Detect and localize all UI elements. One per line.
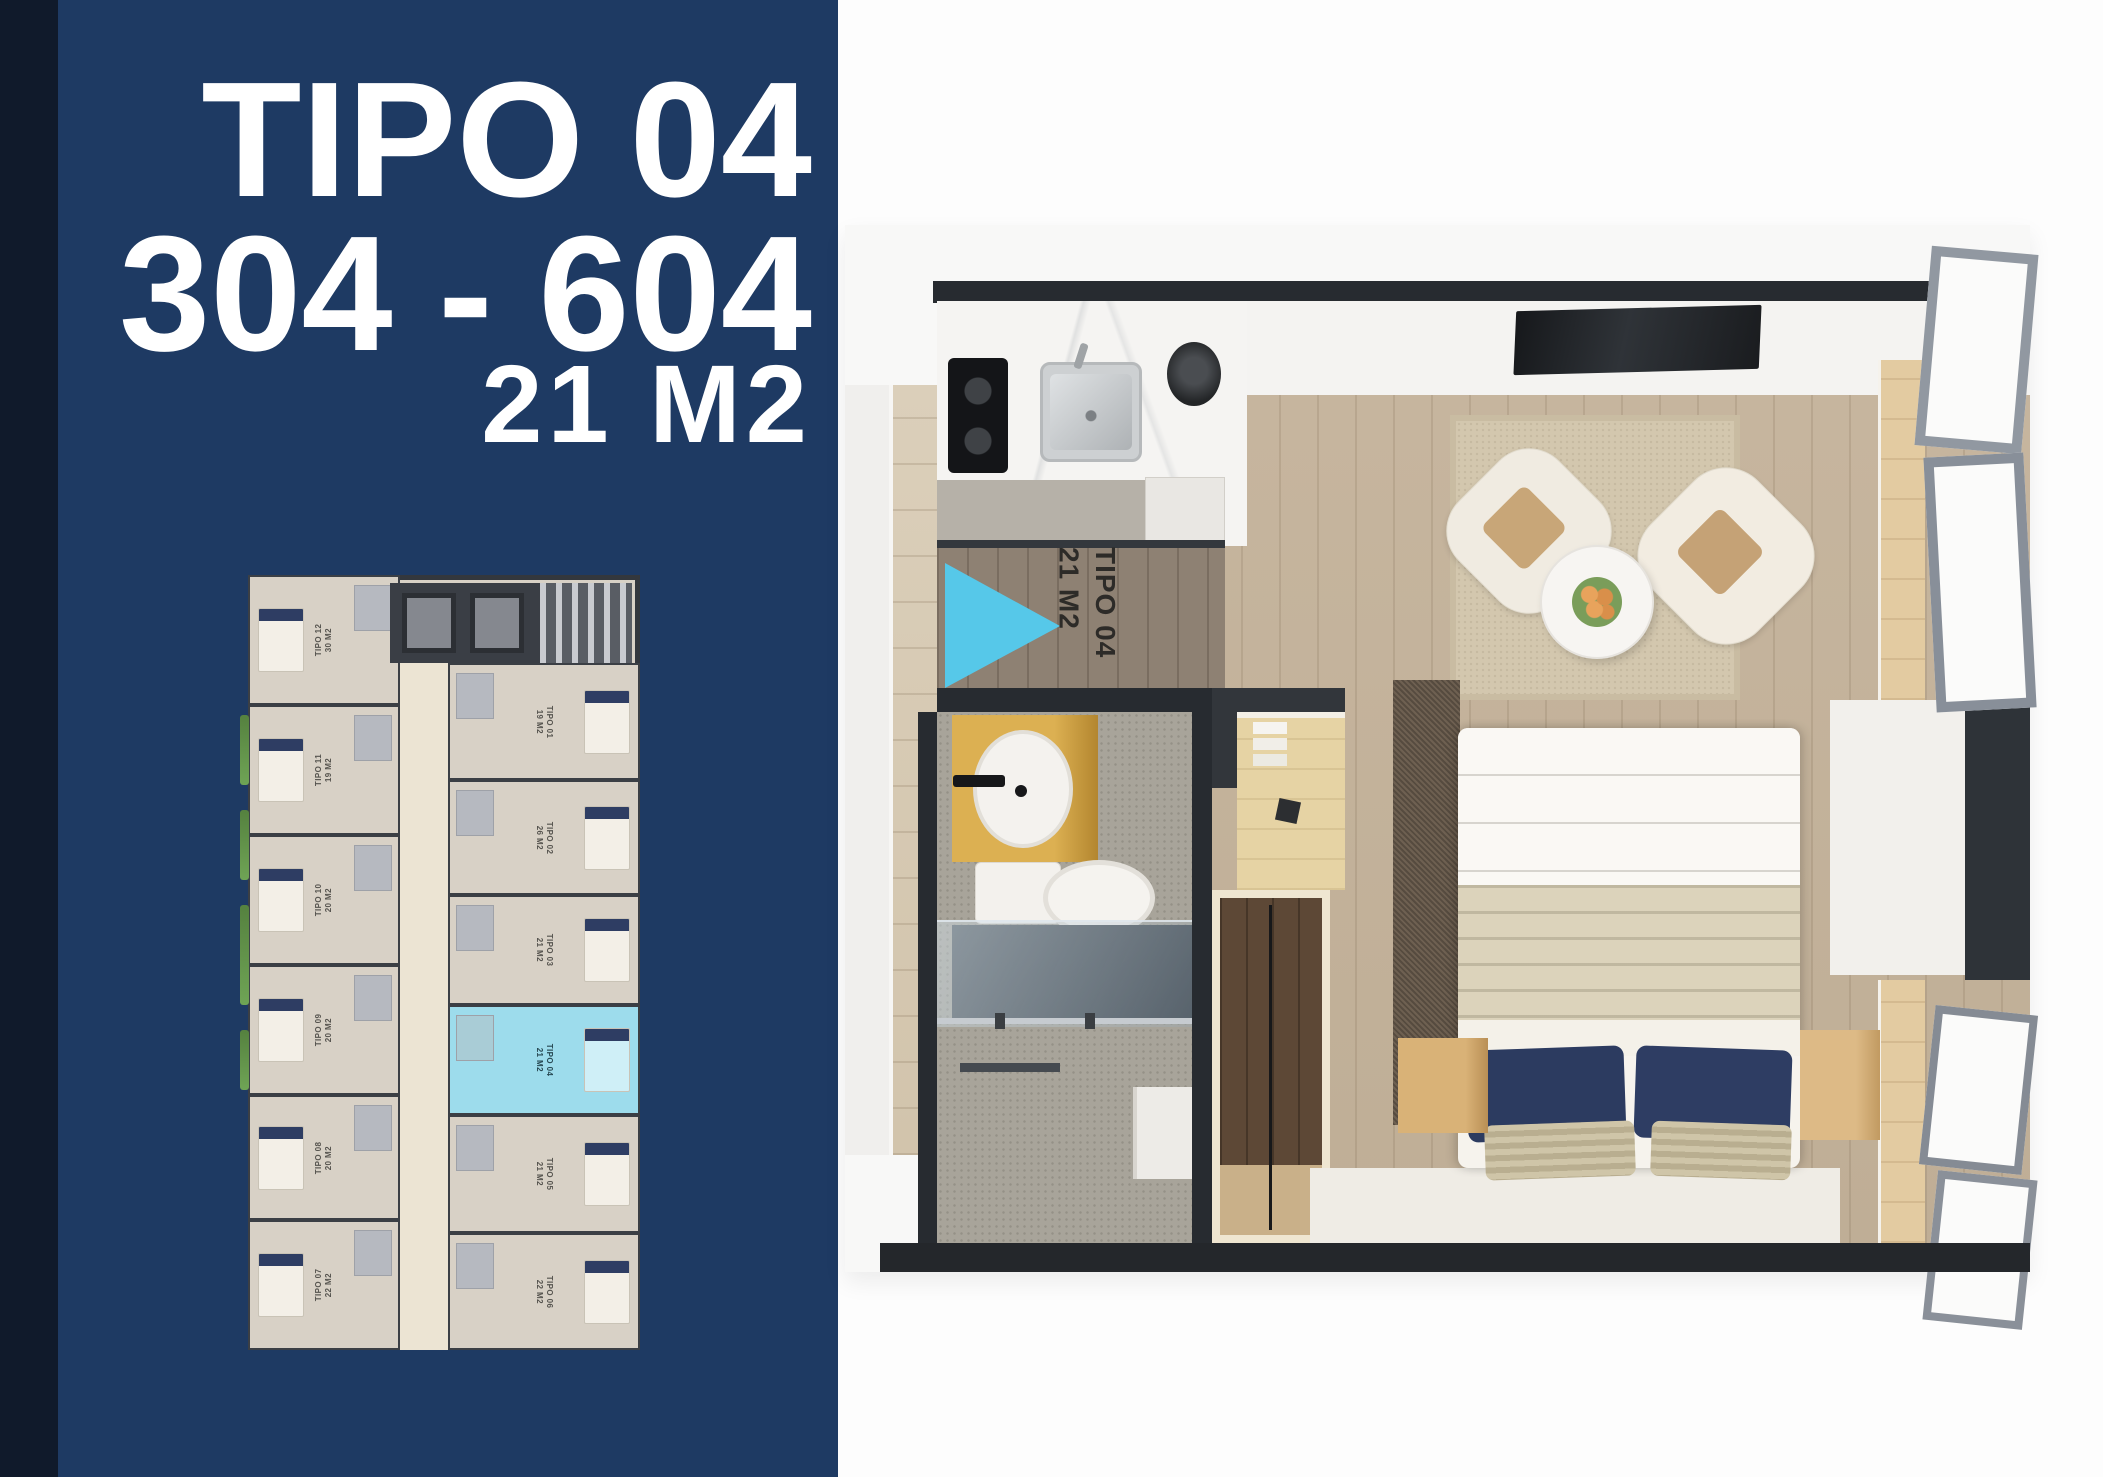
key-plan-unit-area: 20 M2 [324,884,334,917]
shower-handle [1085,1013,1095,1029]
title-tipo: TIPO 04 [201,58,812,222]
key-plan-unit-tipo-03: TIPO 0321 M2 [448,895,640,1005]
sink-drain [1015,785,1027,797]
planter [240,905,249,1005]
sink-basin [1050,374,1132,450]
sidebar: TIPO 04 304 - 604 21 M2 TIPO 1230 M2TIPO… [58,0,838,1477]
key-plan-unit-tipo-01: TIPO 0119 M2 [448,663,640,780]
key-plan-unit-area: 21 M2 [534,934,544,967]
planter [240,810,249,880]
right-dark-wall [1965,690,2030,980]
key-plan-unit-tipo-10: TIPO 1020 M2 [248,835,400,965]
bed-blanket [1458,885,1800,1020]
cooktop [948,358,1008,473]
stairs [540,583,632,663]
key-plan-unit-tipo-09: TIPO 0920 M2 [248,965,400,1095]
key-plan-unit-label: TIPO 0820 M2 [314,1141,334,1174]
key-plan-unit-area: 19 M2 [534,705,544,738]
key-plan-unit-label: TIPO 0119 M2 [534,705,554,738]
key-plan-unit-label: TIPO 1020 M2 [314,884,334,917]
window [1919,1005,2038,1175]
shower-handle [995,1013,1005,1029]
key-plan-unit-area: 19 M2 [324,754,334,786]
key-plan-unit-area: 22 M2 [534,1275,544,1308]
key-plan-unit-area: 26 M2 [534,821,544,854]
key-plan-unit-area: 21 M2 [534,1044,544,1077]
unit-floor-label-area: 21 M2 [1050,547,1086,689]
pillow-striped [1650,1121,1792,1181]
entrance-arrow [945,563,1060,688]
wood-console-lower [1878,980,1925,1243]
key-plan-unit-label: TIPO 0321 M2 [534,934,554,967]
planter [240,1030,249,1090]
key-plan-unit-tipo: TIPO 01 [544,705,554,738]
unit-title: TIPO 04 304 - 604 21 M2 [119,58,812,460]
unit-floor-label-tipo: TIPO 04 [1086,547,1122,689]
key-plan-unit-tipo: TIPO 06 [544,1275,554,1308]
key-plan-unit-tipo: TIPO 08 [314,1141,324,1174]
top-wall [933,281,2030,303]
left-wall-panel [845,385,889,1155]
planter [240,715,249,785]
shower-glass [937,920,1192,1027]
pillow-striped [1484,1120,1636,1180]
elevator-car [470,593,524,653]
key-plan-unit-area: 30 M2 [324,624,334,657]
shelf-books [1253,722,1287,734]
nightstand [1398,1038,1488,1133]
key-plan-unit-tipo-07: TIPO 0722 M2 [248,1220,400,1350]
bathroom-left-wall [918,712,937,1243]
vanity-faucet [953,775,1005,787]
appliance-drawer [1145,477,1225,547]
towel-bar [960,1063,1060,1072]
key-plan-unit-tipo-11: TIPO 1119 M2 [248,705,400,835]
elevator-block [390,583,540,663]
bottom-wall [880,1243,2030,1272]
entry-bathroom-wall [937,688,1225,712]
desk-ledge [1830,700,1965,975]
key-plan-unit-label: TIPO 0920 M2 [314,1014,334,1047]
unit-floor-label: TIPO 04 21 M2 [1050,547,1123,689]
elevator-car [402,593,456,653]
key-plan-unit-tipo-08: TIPO 0820 M2 [248,1095,400,1220]
key-plan-unit-tipo: TIPO 11 [314,754,324,786]
key-plan: TIPO 1230 M2TIPO 1119 M2TIPO 1020 M2TIPO… [240,575,640,1350]
key-plan-unit-label: TIPO 0722 M2 [314,1269,334,1302]
key-plan-unit-tipo-05: TIPO 0521 M2 [448,1115,640,1233]
key-plan-unit-tipo: TIPO 07 [314,1269,324,1302]
shower-glass-rail [937,1018,1192,1024]
apartment-render: TIPO 04 21 M2 [845,225,2030,1272]
shelf-decor [1275,798,1301,824]
bench [1800,1030,1880,1140]
key-plan-unit-label: TIPO 0521 M2 [534,1158,554,1191]
key-plan-unit-tipo: TIPO 09 [314,1014,324,1047]
key-plan-unit-tipo: TIPO 12 [314,624,324,657]
flower-bouquet [1572,577,1622,627]
tv [1513,305,1761,375]
flyer-page: TIPO 04 304 - 604 21 M2 TIPO 1230 M2TIPO… [0,0,2103,1477]
key-plan-corridor [400,660,448,1350]
towel [1133,1087,1195,1179]
key-plan-unit-tipo: TIPO 03 [544,934,554,967]
key-plan-unit-area: 20 M2 [324,1141,334,1174]
counter-return [1225,301,1247,546]
key-plan-unit-tipo: TIPO 02 [544,821,554,854]
key-plan-unit-label: TIPO 0622 M2 [534,1275,554,1308]
key-plan-unit-tipo: TIPO 10 [314,884,324,917]
key-plan-unit-label: TIPO 0421 M2 [534,1044,554,1077]
key-plan-unit-tipo: TIPO 05 [544,1158,554,1191]
key-plan-unit-tipo: TIPO 04 [544,1044,554,1077]
closet-wall [1192,688,1212,1243]
coffee-maker [1167,342,1221,406]
key-plan-unit-label: TIPO 1119 M2 [314,754,334,786]
key-plan-unit-tipo-12: TIPO 1230 M2 [248,575,400,705]
window [1923,453,2036,713]
key-plan-unit-label: TIPO 1230 M2 [314,624,334,657]
wardrobe-rod [1269,905,1272,1230]
key-plan-unit-label: TIPO 0226 M2 [534,821,554,854]
key-plan-unit-area: 20 M2 [324,1014,334,1047]
key-plan-unit-tipo-04: TIPO 0421 M2 [448,1005,640,1115]
title-area: 21 M2 [481,350,812,460]
key-plan-unit-area: 22 M2 [324,1269,334,1302]
key-plan-unit-area: 21 M2 [534,1158,544,1191]
accent-strip [0,0,58,1477]
key-plan-unit-tipo-06: TIPO 0622 M2 [448,1233,640,1350]
key-plan-unit-tipo-02: TIPO 0226 M2 [448,780,640,895]
window [1914,246,2038,455]
